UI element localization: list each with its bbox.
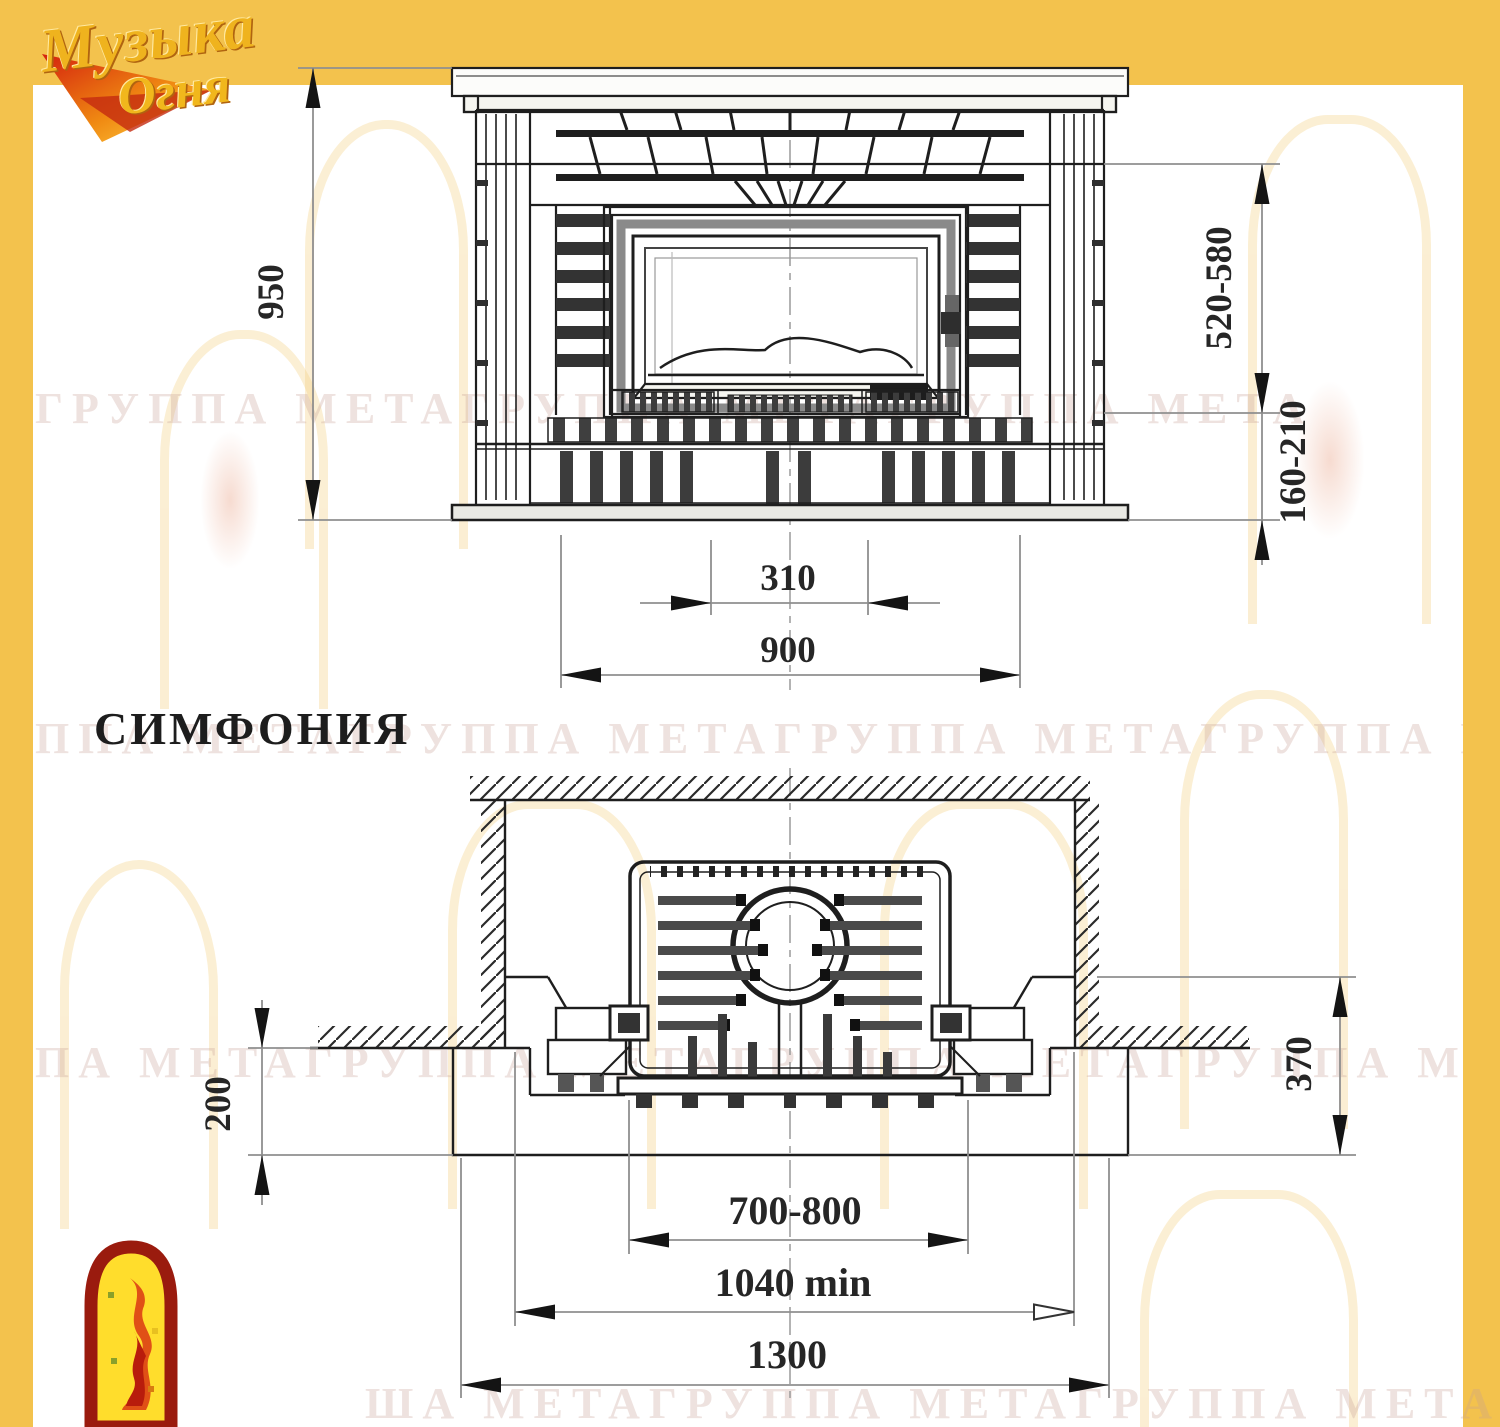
dim-label-inner-width: 310: [760, 558, 816, 599]
dim-label-overall-width: 1300: [747, 1332, 827, 1377]
dim-label-hearth-width: 900: [760, 630, 816, 671]
dim-label-base-offset: 200: [198, 1076, 239, 1132]
corner-flame-window-icon: [84, 1236, 178, 1427]
plan-view-drawing: [310, 776, 1250, 1155]
dim-label-niche-width: 1040 min: [715, 1260, 872, 1305]
dim-label-portal-depth: 370: [1279, 1036, 1320, 1092]
dim-label-height: 950: [251, 264, 292, 320]
dim-label-insert-width: 700-800: [728, 1188, 861, 1233]
drawing-sheet: ГРУППА МЕТАГРУППА МЕТАГРУППА МЕТА ППА МЕ…: [0, 0, 1500, 1427]
dim-label-firebox-zone: 520-580: [1199, 226, 1240, 349]
dim-label-plinth-zone: 160-210: [1273, 400, 1314, 523]
model-title: СИМФОНИЯ: [94, 702, 410, 755]
